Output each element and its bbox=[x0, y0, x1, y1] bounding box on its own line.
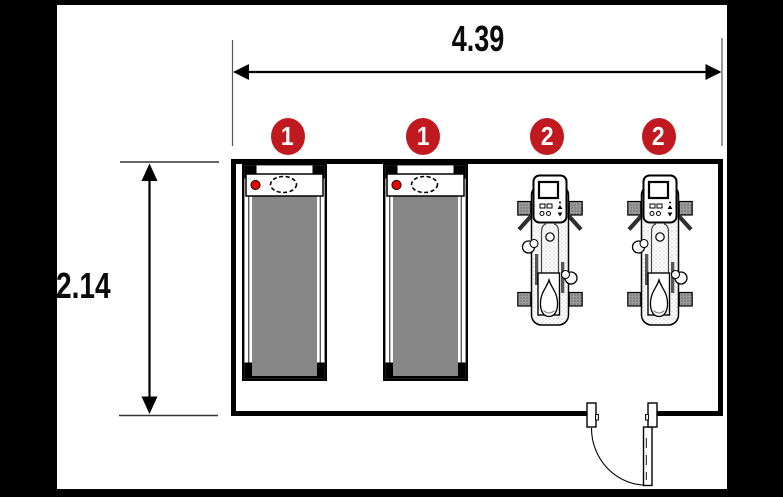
height-dimension-label: 2.14 bbox=[56, 268, 111, 304]
marker-number: 2 bbox=[652, 123, 665, 149]
width-dimension-label: 4.39 bbox=[452, 21, 505, 57]
treadmill-2-icon bbox=[383, 163, 468, 381]
weight-machine-1-icon bbox=[517, 174, 583, 326]
door-icon bbox=[587, 403, 657, 486]
floor-plan-canvas: 1 1 2 2 4.39 2.14 bbox=[0, 0, 783, 497]
marker-number: 2 bbox=[541, 123, 554, 149]
marker-number: 1 bbox=[281, 123, 294, 149]
marker-badge-treadmill-1: 1 bbox=[271, 118, 305, 155]
height-dimension-line bbox=[119, 162, 219, 416]
marker-badge-treadmill-2: 1 bbox=[406, 118, 440, 155]
treadmill-1-icon bbox=[242, 163, 327, 381]
marker-badge-machine-1: 2 bbox=[530, 118, 564, 155]
weight-machine-2-icon bbox=[627, 174, 693, 326]
marker-badge-machine-2: 2 bbox=[642, 118, 676, 155]
marker-number: 1 bbox=[417, 123, 430, 149]
